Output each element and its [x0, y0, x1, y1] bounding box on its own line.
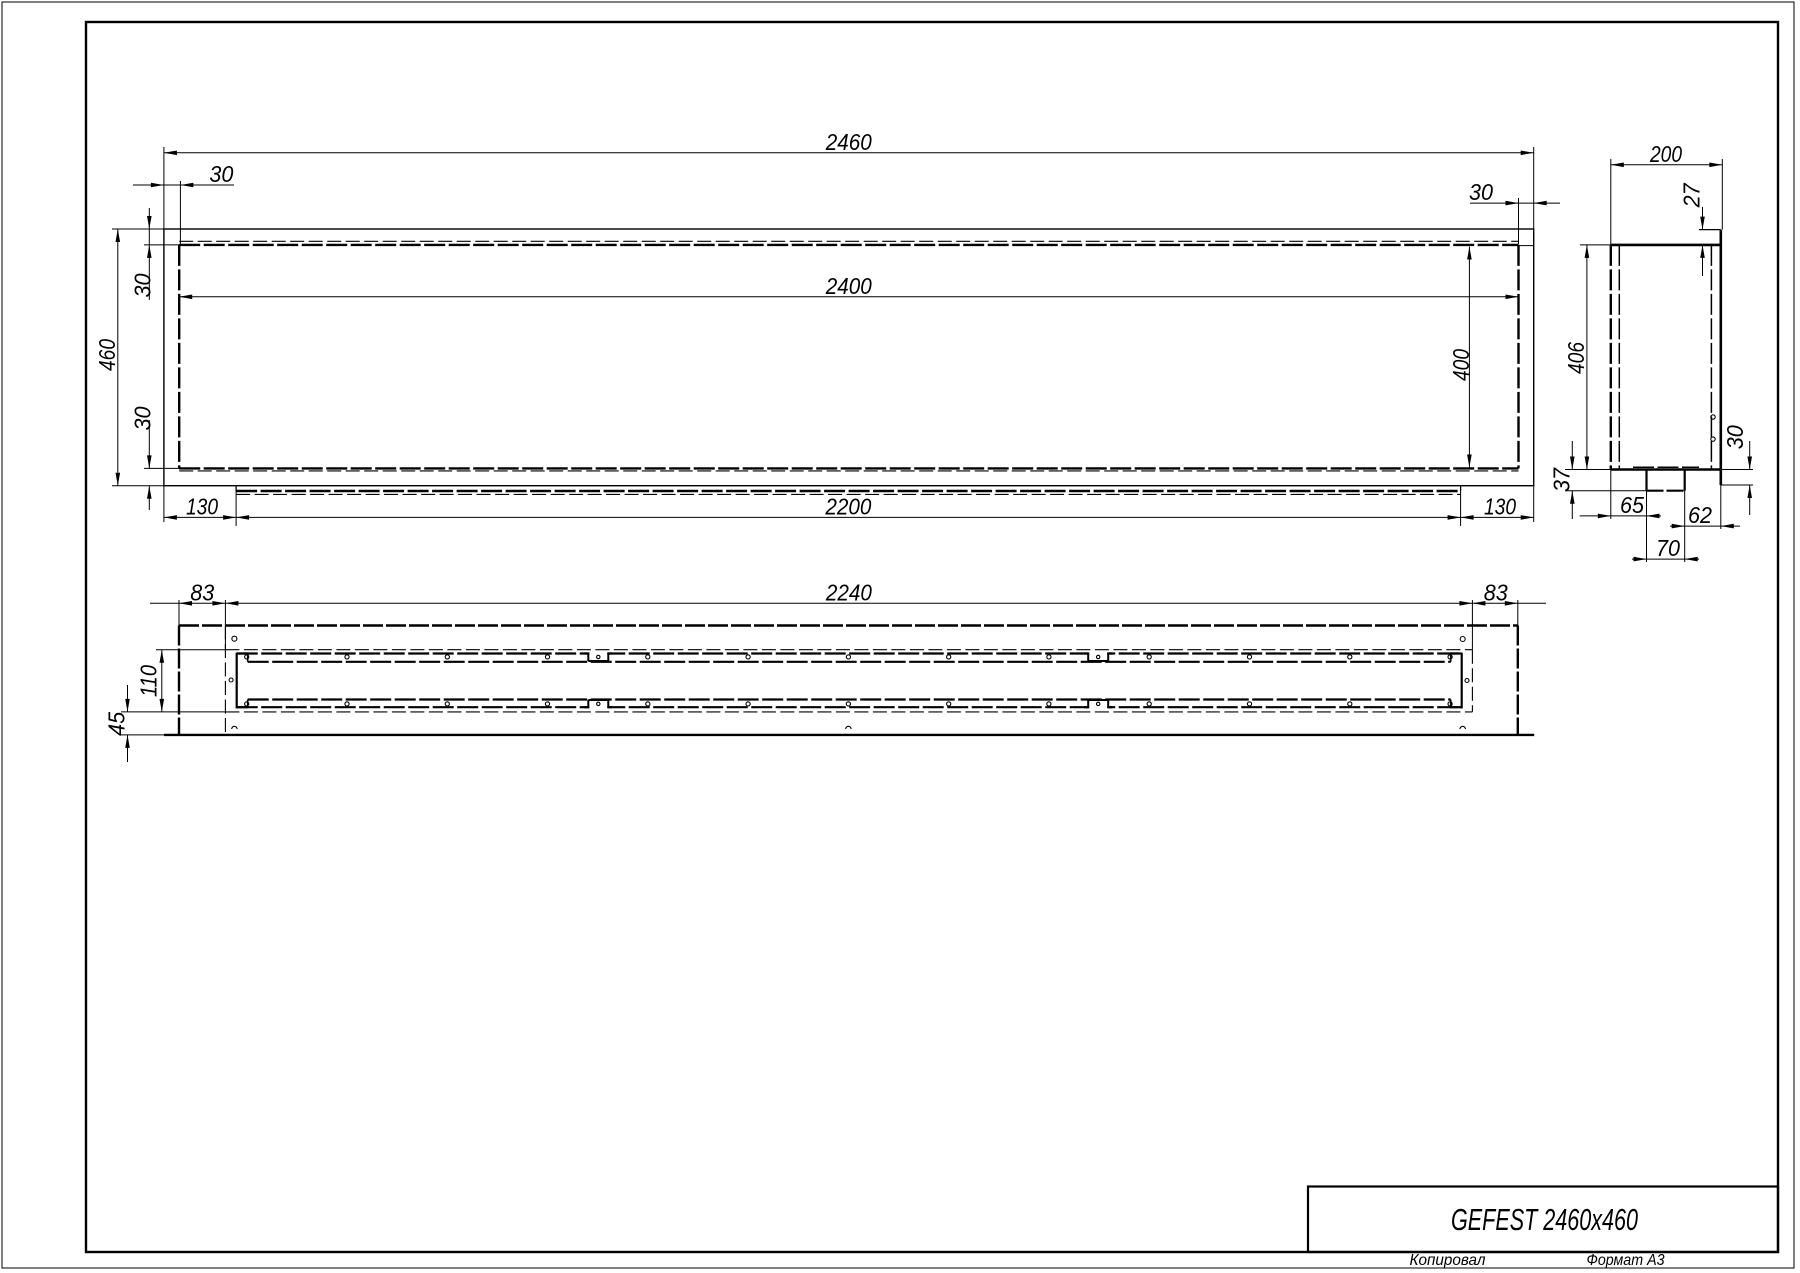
svg-text:2400: 2400 — [825, 273, 872, 299]
svg-text:62: 62 — [1688, 502, 1712, 528]
svg-text:Формат А3: Формат А3 — [1587, 1252, 1665, 1269]
svg-text:30: 30 — [1722, 425, 1748, 449]
svg-text:83: 83 — [190, 579, 214, 605]
svg-text:83: 83 — [1484, 579, 1508, 605]
svg-text:2460: 2460 — [825, 129, 872, 155]
svg-text:2240: 2240 — [825, 579, 872, 605]
svg-text:45: 45 — [104, 712, 130, 736]
svg-text:30: 30 — [1469, 179, 1493, 205]
svg-text:GEFEST 2460x460: GEFEST 2460x460 — [1451, 1202, 1638, 1237]
svg-text:27: 27 — [1679, 182, 1705, 208]
svg-text:37: 37 — [1548, 467, 1574, 492]
svg-text:406: 406 — [1563, 342, 1589, 374]
svg-text:460: 460 — [94, 339, 120, 371]
svg-text:110: 110 — [136, 665, 162, 697]
svg-text:30: 30 — [130, 406, 156, 430]
svg-text:30: 30 — [209, 161, 233, 187]
svg-text:65: 65 — [1620, 492, 1644, 518]
svg-text:2200: 2200 — [825, 493, 872, 519]
svg-text:70: 70 — [1656, 535, 1680, 561]
svg-text:400: 400 — [1448, 349, 1474, 381]
svg-text:30: 30 — [130, 273, 156, 297]
svg-text:130: 130 — [1484, 493, 1516, 519]
svg-text:130: 130 — [186, 493, 218, 519]
svg-text:200: 200 — [1649, 141, 1682, 167]
svg-text:Копировал: Копировал — [1410, 1252, 1486, 1269]
